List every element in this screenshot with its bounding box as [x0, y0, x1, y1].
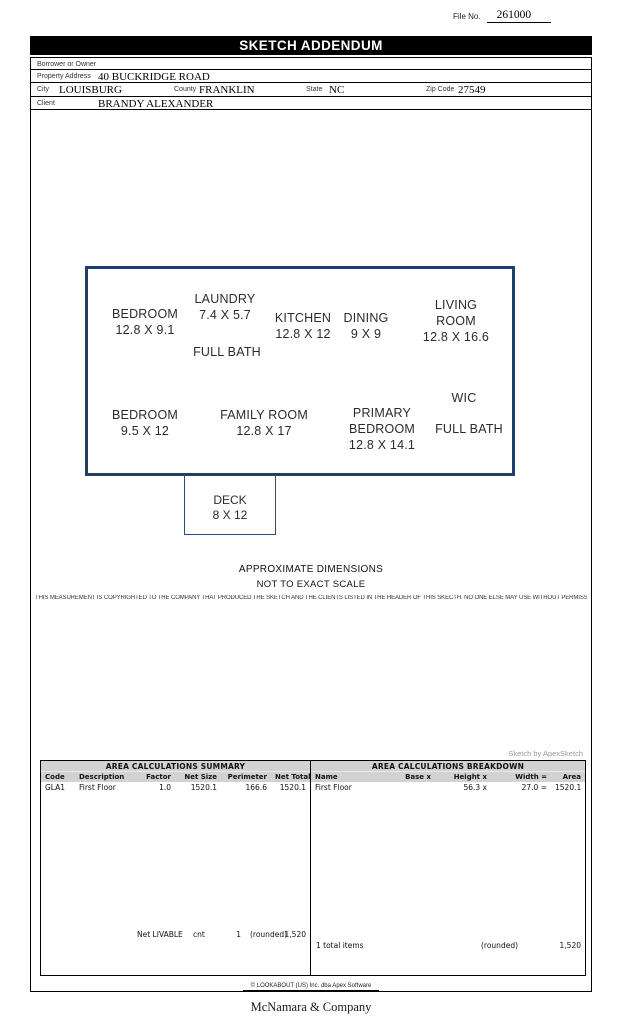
table-row: First Floor 56.3 x 27.0 = 1520.1: [311, 782, 585, 793]
room-bedroom-1: BEDROOM12.8 X 9.1: [100, 306, 190, 338]
software-credit-text: © LOOKABOUT (US) Inc. dba Apex Software: [243, 983, 380, 991]
room-name: LAUNDRY: [195, 292, 256, 306]
room-bedroom-2: BEDROOM9.5 X 12: [100, 407, 190, 439]
form-row-client: Client BRANDY ALEXANDER: [31, 97, 591, 110]
room-name: KITCHEN: [275, 311, 331, 325]
zip-label: Zip Code: [426, 86, 454, 93]
file-number-label: File No.: [453, 12, 481, 23]
summary-footer-total: 1,520: [285, 930, 306, 939]
cell-perimeter: 166.6: [221, 783, 271, 792]
col-header: Net Totals: [271, 773, 310, 781]
property-address-label: Property Address: [37, 73, 91, 80]
area-calculations-tables: AREA CALCULATIONS SUMMARY Code Descripti…: [40, 760, 586, 976]
client-value: BRANDY ALEXANDER: [98, 98, 213, 110]
col-header: Height x: [435, 773, 491, 781]
county-label: County: [174, 86, 196, 93]
summary-footer-cnt-value: 1: [223, 930, 241, 939]
city-label: City: [37, 86, 49, 93]
approximate-dimensions-note: APPROXIMATE DIMENSIONS: [31, 564, 591, 575]
room-name: BEDROOM: [112, 307, 178, 321]
cell-area: 1520.1: [551, 783, 585, 792]
col-header: Code: [41, 773, 75, 781]
software-credit: © LOOKABOUT (US) Inc. dba Apex Software: [31, 983, 591, 989]
form-row-city: City LOUISBURG County FRANKLIN State NC …: [31, 83, 591, 97]
col-header: Width =: [491, 773, 551, 781]
room-living-room: LIVING ROOM12.8 X 16.6: [420, 297, 492, 345]
floor-plan-outline: BEDROOM12.8 X 9.1 LAUNDRY7.4 X 5.7 FULL …: [85, 266, 515, 476]
room-family-room: FAMILY ROOM12.8 X 17: [209, 407, 319, 439]
cell-factor: 1.0: [139, 783, 175, 792]
room-dims: 7.4 X 5.7: [180, 307, 270, 323]
area-calculations-breakdown-table: AREA CALCULATIONS BREAKDOWN Name Base x …: [311, 761, 585, 975]
room-deck: DECK 8 X 12: [184, 474, 276, 535]
room-dims: 8 X 12: [185, 508, 275, 523]
breakdown-footer-label: 1 total items: [316, 941, 364, 950]
summary-footer-label: Net LIVABLE: [137, 930, 183, 939]
property-address-value: 40 BUCKRIDGE ROAD: [98, 71, 210, 83]
summary-footer-rounded: (rounded): [250, 930, 287, 939]
breakdown-table-header-row: Name Base x Height x Width = Area: [311, 772, 585, 782]
table-row: GLA1 First Floor 1.0 1520.1 166.6 1520.1: [41, 782, 310, 793]
room-dims: 12.8 X 9.1: [100, 322, 190, 338]
company-footer: McNamara & Company: [0, 1000, 622, 1015]
col-header: Name: [311, 773, 381, 781]
borrower-label: Borrower or Owner: [37, 61, 96, 68]
page-title: SKETCH ADDENDUM: [30, 36, 592, 55]
room-dims: 9 X 9: [331, 326, 401, 342]
col-header: Net Size: [175, 773, 221, 781]
breakdown-table-title: AREA CALCULATIONS BREAKDOWN: [311, 761, 585, 772]
form-row-borrower: Borrower or Owner: [31, 58, 591, 70]
cell-net-totals: 1520.1: [271, 783, 310, 792]
breakdown-footer-rounded: (rounded): [481, 941, 518, 950]
form-row-address: Property Address 40 BUCKRIDGE ROAD: [31, 70, 591, 83]
room-wic: WIC: [434, 390, 494, 406]
room-name: LIVING ROOM: [435, 298, 477, 328]
room-name: FAMILY ROOM: [220, 408, 308, 422]
breakdown-footer-total: 1,520: [560, 941, 581, 950]
zip-value: 27549: [458, 84, 486, 96]
cell-width: 27.0 =: [491, 783, 551, 792]
room-name: FULL BATH: [193, 345, 261, 359]
room-full-bath-2: FULL BATH: [424, 421, 514, 437]
summary-table-title: AREA CALCULATIONS SUMMARY: [41, 761, 310, 772]
file-number-value: 261000: [487, 9, 551, 23]
room-dims: 12.8 X 16.6: [420, 329, 492, 345]
cell-height: 56.3 x: [435, 783, 491, 792]
state-label: State: [306, 86, 322, 93]
city-value: LOUISBURG: [59, 84, 122, 96]
col-header: Area: [551, 773, 585, 781]
room-name: WIC: [452, 391, 477, 405]
room-name: BEDROOM: [112, 408, 178, 422]
cell-code: GLA1: [41, 783, 75, 792]
room-full-bath-1: FULL BATH: [182, 344, 272, 360]
area-calculations-summary-table: AREA CALCULATIONS SUMMARY Code Descripti…: [41, 761, 311, 975]
cell-net-size: 1520.1: [175, 783, 221, 792]
room-dims: 12.8 X 17: [209, 423, 319, 439]
client-label: Client: [37, 100, 55, 107]
room-laundry: LAUNDRY7.4 X 5.7: [180, 291, 270, 323]
col-header: Base x: [381, 773, 435, 781]
county-value: FRANKLIN: [199, 84, 255, 96]
col-header: Perimeter: [221, 773, 271, 781]
col-header: Description: [75, 773, 139, 781]
room-dims: 9.5 X 12: [100, 423, 190, 439]
room-dining: DINING9 X 9: [331, 310, 401, 342]
room-name: DECK: [213, 493, 246, 507]
sketch-addendum-page: File No. 261000 SKETCH ADDENDUM Borrower…: [0, 0, 622, 1024]
sketch-credit: Sketch by ApexSketch: [508, 749, 583, 758]
room-name: DINING: [344, 311, 389, 325]
room-name: PRIMARY BEDROOM: [349, 406, 415, 436]
document-body: Borrower or Owner Property Address 40 BU…: [30, 57, 592, 992]
cell-name: First Floor: [311, 783, 381, 792]
summary-footer-cnt-label: cnt: [193, 930, 205, 939]
not-to-scale-note: NOT TO EXACT SCALE: [31, 579, 591, 590]
cell-description: First Floor: [75, 783, 139, 792]
room-primary-bedroom: PRIMARY BEDROOM12.8 X 14.1: [336, 405, 428, 453]
room-name: FULL BATH: [435, 422, 503, 436]
room-dims: 12.8 X 14.1: [336, 437, 428, 453]
state-value: NC: [329, 84, 344, 96]
summary-table-header-row: Code Description Factor Net Size Perimet…: [41, 772, 310, 782]
file-number: File No. 261000: [453, 9, 551, 23]
col-header: Factor: [139, 773, 175, 781]
measurement-copyright: THIS MEASUREMENT IS COPYRIGHTED TO THE C…: [35, 595, 587, 601]
